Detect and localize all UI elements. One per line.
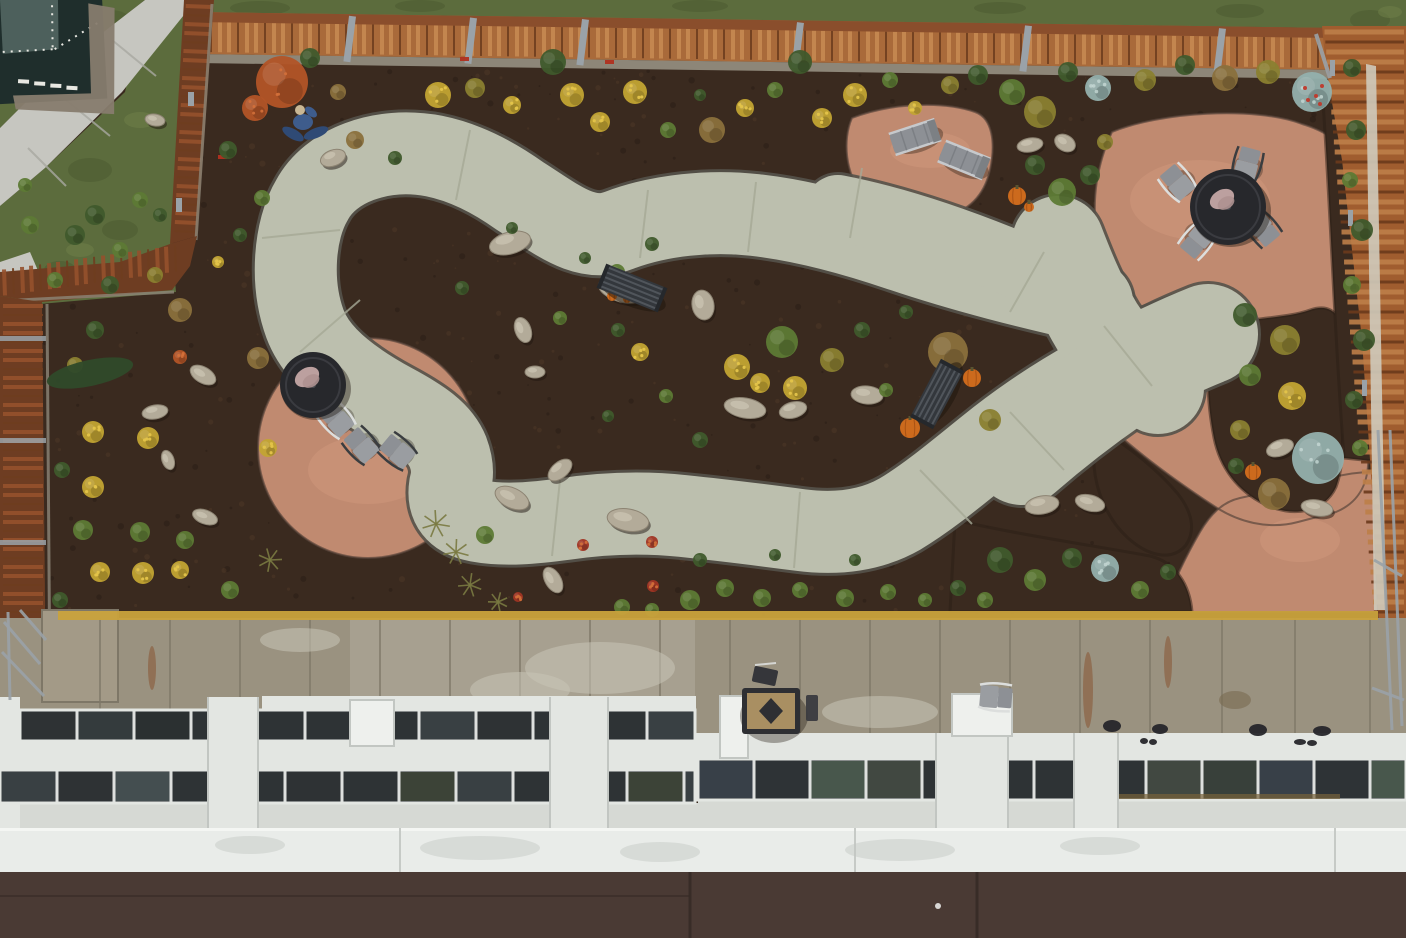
mulch-speckle bbox=[433, 262, 435, 264]
parapet-top-edge bbox=[0, 828, 1406, 831]
plant-shade bbox=[1362, 338, 1373, 349]
fence-left-rail bbox=[0, 540, 46, 545]
plant-shade bbox=[60, 469, 68, 477]
mulch-speckle bbox=[685, 305, 689, 309]
mulch-speckle bbox=[134, 604, 137, 607]
flower-dot bbox=[216, 263, 219, 266]
mulch-speckle bbox=[552, 350, 555, 353]
pumpkin-stem bbox=[1016, 185, 1019, 189]
mulch-speckle bbox=[184, 331, 186, 333]
grass-shade bbox=[1216, 4, 1264, 18]
flower-dot bbox=[913, 103, 916, 106]
flower-dot bbox=[182, 352, 185, 355]
mulch-speckle bbox=[539, 85, 541, 87]
mulch-speckle bbox=[259, 160, 265, 166]
flower-dot bbox=[600, 119, 603, 122]
flower-dot bbox=[148, 437, 151, 440]
grass-shade bbox=[102, 220, 138, 240]
flower-dot bbox=[654, 541, 657, 544]
fence-left-rail bbox=[0, 336, 46, 341]
mulch-speckle bbox=[55, 438, 60, 443]
fence-upper-left-slat bbox=[185, 15, 211, 16]
plant-shade bbox=[1360, 228, 1371, 239]
mulch-speckle bbox=[144, 554, 150, 560]
plant-shade bbox=[1103, 141, 1111, 149]
spruce-dot bbox=[1299, 448, 1303, 452]
mulch-speckle bbox=[886, 467, 889, 470]
plant-shade bbox=[1066, 71, 1076, 81]
mulch-speckle bbox=[646, 70, 649, 73]
mulch-speckle bbox=[558, 355, 563, 360]
grass-shade bbox=[974, 2, 1026, 14]
plant-shade bbox=[226, 149, 235, 158]
flower-dot bbox=[748, 107, 751, 110]
parapet-mottle bbox=[845, 839, 955, 861]
wall-stain bbox=[260, 628, 340, 652]
mulch-speckle bbox=[557, 118, 560, 121]
mulch-speckle bbox=[734, 288, 738, 292]
flower-dot bbox=[144, 569, 147, 572]
terrace-object bbox=[1307, 740, 1317, 746]
mulch-speckle bbox=[446, 331, 451, 336]
glass-pane bbox=[1147, 761, 1201, 798]
mulch-speckle bbox=[639, 72, 644, 77]
mulch-speckle bbox=[763, 143, 769, 149]
plant-shade bbox=[709, 128, 722, 141]
plant-shade bbox=[1266, 70, 1278, 82]
pumpkin bbox=[963, 369, 981, 387]
grass-tuft bbox=[458, 585, 470, 586]
plant-shade bbox=[461, 287, 468, 294]
flower-dot bbox=[1284, 390, 1287, 393]
mulch-speckle bbox=[493, 446, 495, 448]
mulch-speckle bbox=[514, 85, 518, 89]
plant-shade bbox=[550, 60, 563, 73]
mulch-speckle bbox=[392, 227, 397, 232]
plant-shade bbox=[988, 418, 999, 429]
glass-pane bbox=[21, 712, 76, 739]
mulch-speckle bbox=[256, 333, 258, 335]
flower-dot bbox=[756, 386, 759, 389]
plant-shade bbox=[1037, 110, 1053, 126]
mulch-speckle bbox=[494, 354, 499, 359]
fence-corner-slat bbox=[85, 258, 86, 284]
flower-dot bbox=[444, 86, 447, 89]
wall-rust-streak bbox=[1083, 652, 1093, 728]
fence-post-metal bbox=[188, 92, 194, 106]
plant-shade bbox=[1059, 190, 1073, 204]
mulch-speckle bbox=[750, 423, 755, 428]
spruce-dot bbox=[1089, 84, 1093, 88]
mulch-speckle bbox=[741, 300, 745, 304]
flower-dot bbox=[850, 86, 853, 89]
plant-shade bbox=[118, 249, 126, 257]
mulch-speckle bbox=[188, 586, 190, 588]
plant-shade bbox=[699, 94, 705, 100]
glass-pane bbox=[1315, 761, 1369, 798]
flower-dot bbox=[269, 451, 272, 454]
flower-dot bbox=[252, 105, 255, 108]
plant-shade bbox=[28, 224, 37, 233]
glass-pane bbox=[420, 712, 475, 739]
flower-dot bbox=[1298, 396, 1301, 399]
canopy-beam bbox=[936, 733, 1008, 828]
grass-shade bbox=[395, 0, 445, 12]
mulch-speckle bbox=[1081, 480, 1084, 483]
shed-vent bbox=[66, 86, 77, 91]
mulch-speckle bbox=[278, 166, 280, 168]
mulch-speckle bbox=[809, 402, 811, 404]
flower-dot bbox=[515, 98, 518, 101]
flower-dot bbox=[148, 433, 151, 436]
mulch-speckle bbox=[549, 93, 551, 95]
flower-dot bbox=[733, 358, 736, 361]
mulch-speckle bbox=[1080, 117, 1084, 121]
plant-shade bbox=[976, 74, 986, 84]
plant-shade bbox=[1009, 90, 1022, 103]
wall-rust-streak bbox=[148, 646, 156, 690]
glass-pane bbox=[115, 772, 170, 801]
plant-shade bbox=[607, 415, 613, 421]
mulch-speckle bbox=[272, 575, 276, 579]
plant-shade bbox=[91, 430, 102, 441]
mulch-speckle bbox=[564, 572, 569, 577]
mulch-speckle bbox=[496, 311, 501, 316]
mulch-speckle bbox=[436, 259, 439, 262]
plant-shade bbox=[798, 589, 806, 597]
mulch-speckle bbox=[248, 461, 253, 466]
mulch-speckle bbox=[420, 335, 426, 341]
berry-dot bbox=[1314, 94, 1318, 98]
glass-pane bbox=[400, 772, 455, 801]
mulch-speckle bbox=[673, 419, 675, 421]
plant-shade bbox=[888, 79, 896, 87]
terrace-table-flap bbox=[806, 695, 818, 721]
plant-shade bbox=[885, 389, 892, 396]
pumpkin-stem bbox=[1252, 462, 1255, 466]
terrace-object bbox=[1103, 720, 1121, 732]
building-speck bbox=[935, 903, 941, 909]
flower-dot bbox=[579, 547, 582, 550]
plant-shade bbox=[1033, 164, 1043, 174]
mulch-speckle bbox=[1085, 77, 1087, 79]
flower-dot bbox=[249, 100, 252, 103]
plant-shade bbox=[1070, 557, 1080, 567]
plant-shade bbox=[1234, 465, 1242, 473]
plant-shade bbox=[723, 587, 732, 596]
plant-shade bbox=[651, 243, 658, 250]
spruce-dot bbox=[1097, 79, 1101, 83]
flower-dot bbox=[735, 369, 738, 372]
flower-dot bbox=[630, 84, 633, 87]
plant-shade bbox=[1183, 64, 1193, 74]
fence-red-marker bbox=[605, 60, 614, 64]
mulch-speckle bbox=[1000, 177, 1004, 181]
mulch-speckle bbox=[1289, 81, 1292, 84]
mulch-speckle bbox=[582, 287, 586, 291]
mulch-speckle bbox=[467, 390, 472, 395]
plant-shade bbox=[1282, 338, 1297, 353]
berry-dot bbox=[1320, 84, 1324, 88]
fence-corner-slat bbox=[130, 252, 131, 278]
railing-left bbox=[8, 612, 10, 700]
glass-pane bbox=[1, 772, 56, 801]
flower-dot bbox=[601, 116, 604, 119]
flower-dot bbox=[97, 571, 100, 574]
mulch-speckle bbox=[461, 337, 464, 340]
flower-dot bbox=[263, 446, 266, 449]
spruce-dot bbox=[1098, 571, 1102, 575]
mulch-speckle bbox=[557, 445, 561, 449]
mulch-speckle bbox=[670, 102, 676, 108]
terrace-object bbox=[1140, 738, 1148, 744]
mulch-speckle bbox=[816, 323, 822, 329]
mulch-speckle bbox=[762, 162, 765, 165]
spruce-dot bbox=[1317, 443, 1321, 447]
plant-shade bbox=[256, 356, 267, 367]
mulch-speckle bbox=[293, 593, 298, 598]
fence-upper-left-slat bbox=[186, 6, 212, 7]
photo-canvas bbox=[0, 0, 1406, 938]
mulch-speckle bbox=[58, 448, 61, 451]
plant-shade bbox=[854, 559, 860, 565]
mulch-speckle bbox=[358, 259, 363, 264]
flower-dot bbox=[215, 259, 218, 262]
flower-dot bbox=[435, 100, 438, 103]
spruce-dot bbox=[1326, 448, 1330, 452]
mulch-speckle bbox=[890, 99, 895, 104]
plant-shade bbox=[582, 544, 588, 550]
grass-tuft bbox=[270, 559, 282, 560]
mulch-speckle bbox=[136, 332, 138, 334]
shed-vent bbox=[50, 83, 61, 88]
flower-dot bbox=[252, 112, 255, 115]
mulch-speckle bbox=[205, 450, 207, 452]
fence-post-metal bbox=[1348, 210, 1353, 226]
mulch-speckle bbox=[475, 74, 479, 78]
glass-pane bbox=[477, 712, 532, 739]
fence-corner-slat bbox=[94, 257, 95, 283]
plant-shade bbox=[159, 214, 166, 221]
flower-dot bbox=[737, 362, 740, 365]
mulch-speckle bbox=[76, 404, 79, 407]
flower-dot bbox=[794, 393, 797, 396]
mulch-speckle bbox=[473, 404, 475, 406]
plant-shade bbox=[1033, 578, 1044, 589]
flower-dot bbox=[566, 87, 569, 90]
fence-upper-left-slat bbox=[179, 150, 202, 151]
fence-upper-left-slat bbox=[184, 33, 209, 34]
mulch-speckle bbox=[471, 76, 473, 78]
mulch-speckle bbox=[239, 501, 245, 507]
terrace-object bbox=[1313, 726, 1331, 736]
plant-shade bbox=[698, 439, 706, 447]
plant-shade bbox=[58, 599, 66, 607]
canopy-ledge bbox=[695, 733, 1406, 759]
flower-dot bbox=[184, 573, 187, 576]
mulch-speckle bbox=[387, 69, 392, 74]
plant-shade bbox=[336, 91, 344, 99]
mulch-speckle bbox=[591, 416, 595, 420]
shed-vent bbox=[18, 79, 29, 84]
mulch-speckle bbox=[546, 412, 549, 415]
mulch-speckle bbox=[106, 452, 111, 457]
plant-shade bbox=[1243, 313, 1255, 325]
plant-shade bbox=[798, 60, 810, 72]
mulch-speckle bbox=[766, 474, 771, 479]
flower-dot bbox=[743, 366, 746, 369]
mulch-speckle bbox=[226, 397, 232, 403]
plant-shade bbox=[1222, 76, 1235, 89]
flower-dot bbox=[145, 577, 148, 580]
canopy-beam bbox=[1074, 733, 1118, 828]
mulch-speckle bbox=[224, 241, 227, 244]
mulch-speckle bbox=[641, 114, 646, 119]
mulch-speckle bbox=[241, 282, 247, 288]
mulch-speckle bbox=[979, 203, 981, 205]
mulch-speckle bbox=[630, 122, 635, 127]
fence-post-metal bbox=[1330, 60, 1335, 76]
plant-shade bbox=[559, 317, 566, 324]
mulch-speckle bbox=[119, 343, 124, 348]
canopy-beam bbox=[550, 697, 608, 828]
flower-dot bbox=[738, 103, 741, 106]
glass-pane bbox=[58, 772, 113, 801]
flower-dot bbox=[647, 543, 650, 546]
plant-shade bbox=[853, 93, 865, 105]
mulch-speckle bbox=[620, 148, 626, 154]
flower-dot bbox=[97, 428, 100, 431]
mulch-speckle bbox=[809, 586, 814, 591]
mulch-speckle bbox=[207, 259, 209, 261]
spruce-dot bbox=[1315, 460, 1319, 464]
mulch-speckle bbox=[533, 426, 536, 429]
mulch-speckle bbox=[249, 535, 254, 540]
plant-shade bbox=[793, 386, 805, 398]
plant-shade bbox=[483, 534, 492, 543]
plant-shade bbox=[1354, 129, 1364, 139]
fence-upper-left-slat bbox=[178, 159, 201, 160]
mulch-speckle bbox=[688, 77, 694, 83]
mulch-speckle bbox=[778, 370, 780, 372]
plant-shade bbox=[688, 599, 698, 609]
flower-dot bbox=[847, 100, 850, 103]
flower-dot bbox=[136, 568, 139, 571]
glass-pane bbox=[1203, 761, 1257, 798]
mulch-speckle bbox=[484, 69, 490, 75]
plant-shade bbox=[1143, 78, 1154, 89]
mulch-speckle bbox=[749, 344, 751, 346]
plant-shade bbox=[53, 279, 61, 287]
flower-dot bbox=[260, 110, 263, 113]
flower-dot bbox=[642, 348, 645, 351]
mulch-speckle bbox=[727, 278, 732, 283]
plant-shade bbox=[774, 554, 780, 560]
fence-upper-left-slat bbox=[182, 87, 206, 88]
fence-corner-slat bbox=[166, 247, 167, 273]
plant-shade bbox=[178, 569, 187, 578]
fence-corner-slat bbox=[103, 256, 104, 282]
flower-dot bbox=[648, 540, 651, 543]
mulch-speckle bbox=[964, 88, 966, 90]
flower-dot bbox=[633, 356, 636, 359]
flower-dot bbox=[580, 542, 583, 545]
fence-post-metal bbox=[176, 198, 182, 212]
mulch-speckle bbox=[229, 160, 232, 163]
flower-dot bbox=[284, 72, 287, 75]
flower-dot bbox=[593, 119, 596, 122]
mulch-speckle bbox=[595, 85, 600, 90]
plant-shade bbox=[1358, 447, 1366, 455]
plant-shade bbox=[473, 87, 483, 97]
flower-dot bbox=[787, 384, 790, 387]
plant-shade bbox=[108, 284, 117, 293]
plant-shade bbox=[228, 589, 237, 598]
mulch-speckle bbox=[452, 245, 454, 247]
mulch-speckle bbox=[352, 597, 355, 600]
shed-vent bbox=[34, 81, 45, 86]
mulch-speckle bbox=[989, 380, 992, 383]
mulch-speckle bbox=[779, 317, 783, 321]
mulch-speckle bbox=[251, 383, 255, 387]
mulch-speckle bbox=[966, 324, 972, 330]
mulch-speckle bbox=[431, 108, 433, 110]
plant-shade bbox=[886, 591, 894, 599]
fence-upper-left-slat bbox=[183, 51, 208, 52]
flower-dot bbox=[629, 89, 632, 92]
mulch-speckle bbox=[555, 428, 561, 434]
rock-highlight bbox=[528, 368, 537, 373]
mulch-speckle bbox=[70, 545, 76, 551]
flower-dot bbox=[1288, 396, 1291, 399]
mulch-speckle bbox=[751, 86, 754, 89]
mulch-speckle bbox=[653, 382, 656, 385]
flower-dot bbox=[655, 585, 658, 588]
mulch-speckle bbox=[939, 585, 944, 590]
fence-corner-slat bbox=[13, 268, 14, 294]
mulch-speckle bbox=[652, 273, 654, 275]
spruce-dot bbox=[1095, 90, 1099, 94]
plant-shade bbox=[183, 539, 192, 548]
mulch-speckle bbox=[896, 300, 900, 304]
glass-pane bbox=[135, 712, 190, 739]
mulch-speckle bbox=[300, 576, 306, 582]
mulch-speckle bbox=[244, 271, 250, 277]
glass-pane bbox=[699, 761, 753, 798]
fence-upper-left-slat bbox=[174, 231, 195, 232]
plant-shade bbox=[1102, 566, 1116, 580]
mulch-speckle bbox=[194, 559, 198, 563]
mulch-speckle bbox=[433, 275, 436, 278]
mulch-speckle bbox=[634, 139, 640, 145]
flower-dot bbox=[859, 88, 862, 91]
flower-dot bbox=[429, 90, 432, 93]
chair-seat bbox=[979, 685, 999, 708]
fence-upper-left-slat bbox=[185, 24, 211, 25]
flower-dot bbox=[176, 565, 179, 568]
plant-shade bbox=[1166, 571, 1174, 579]
mulch-speckle bbox=[118, 523, 124, 529]
plant-shade bbox=[983, 599, 991, 607]
mulch-speckle bbox=[833, 459, 837, 463]
fence-upper-left-slat bbox=[178, 168, 201, 169]
flower-dot bbox=[101, 568, 104, 571]
plant-shade bbox=[1248, 373, 1259, 384]
mulch-speckle bbox=[249, 143, 255, 149]
parapet-mottle bbox=[215, 836, 285, 854]
plant-shade bbox=[924, 599, 931, 606]
spruce-dot bbox=[1319, 95, 1323, 99]
